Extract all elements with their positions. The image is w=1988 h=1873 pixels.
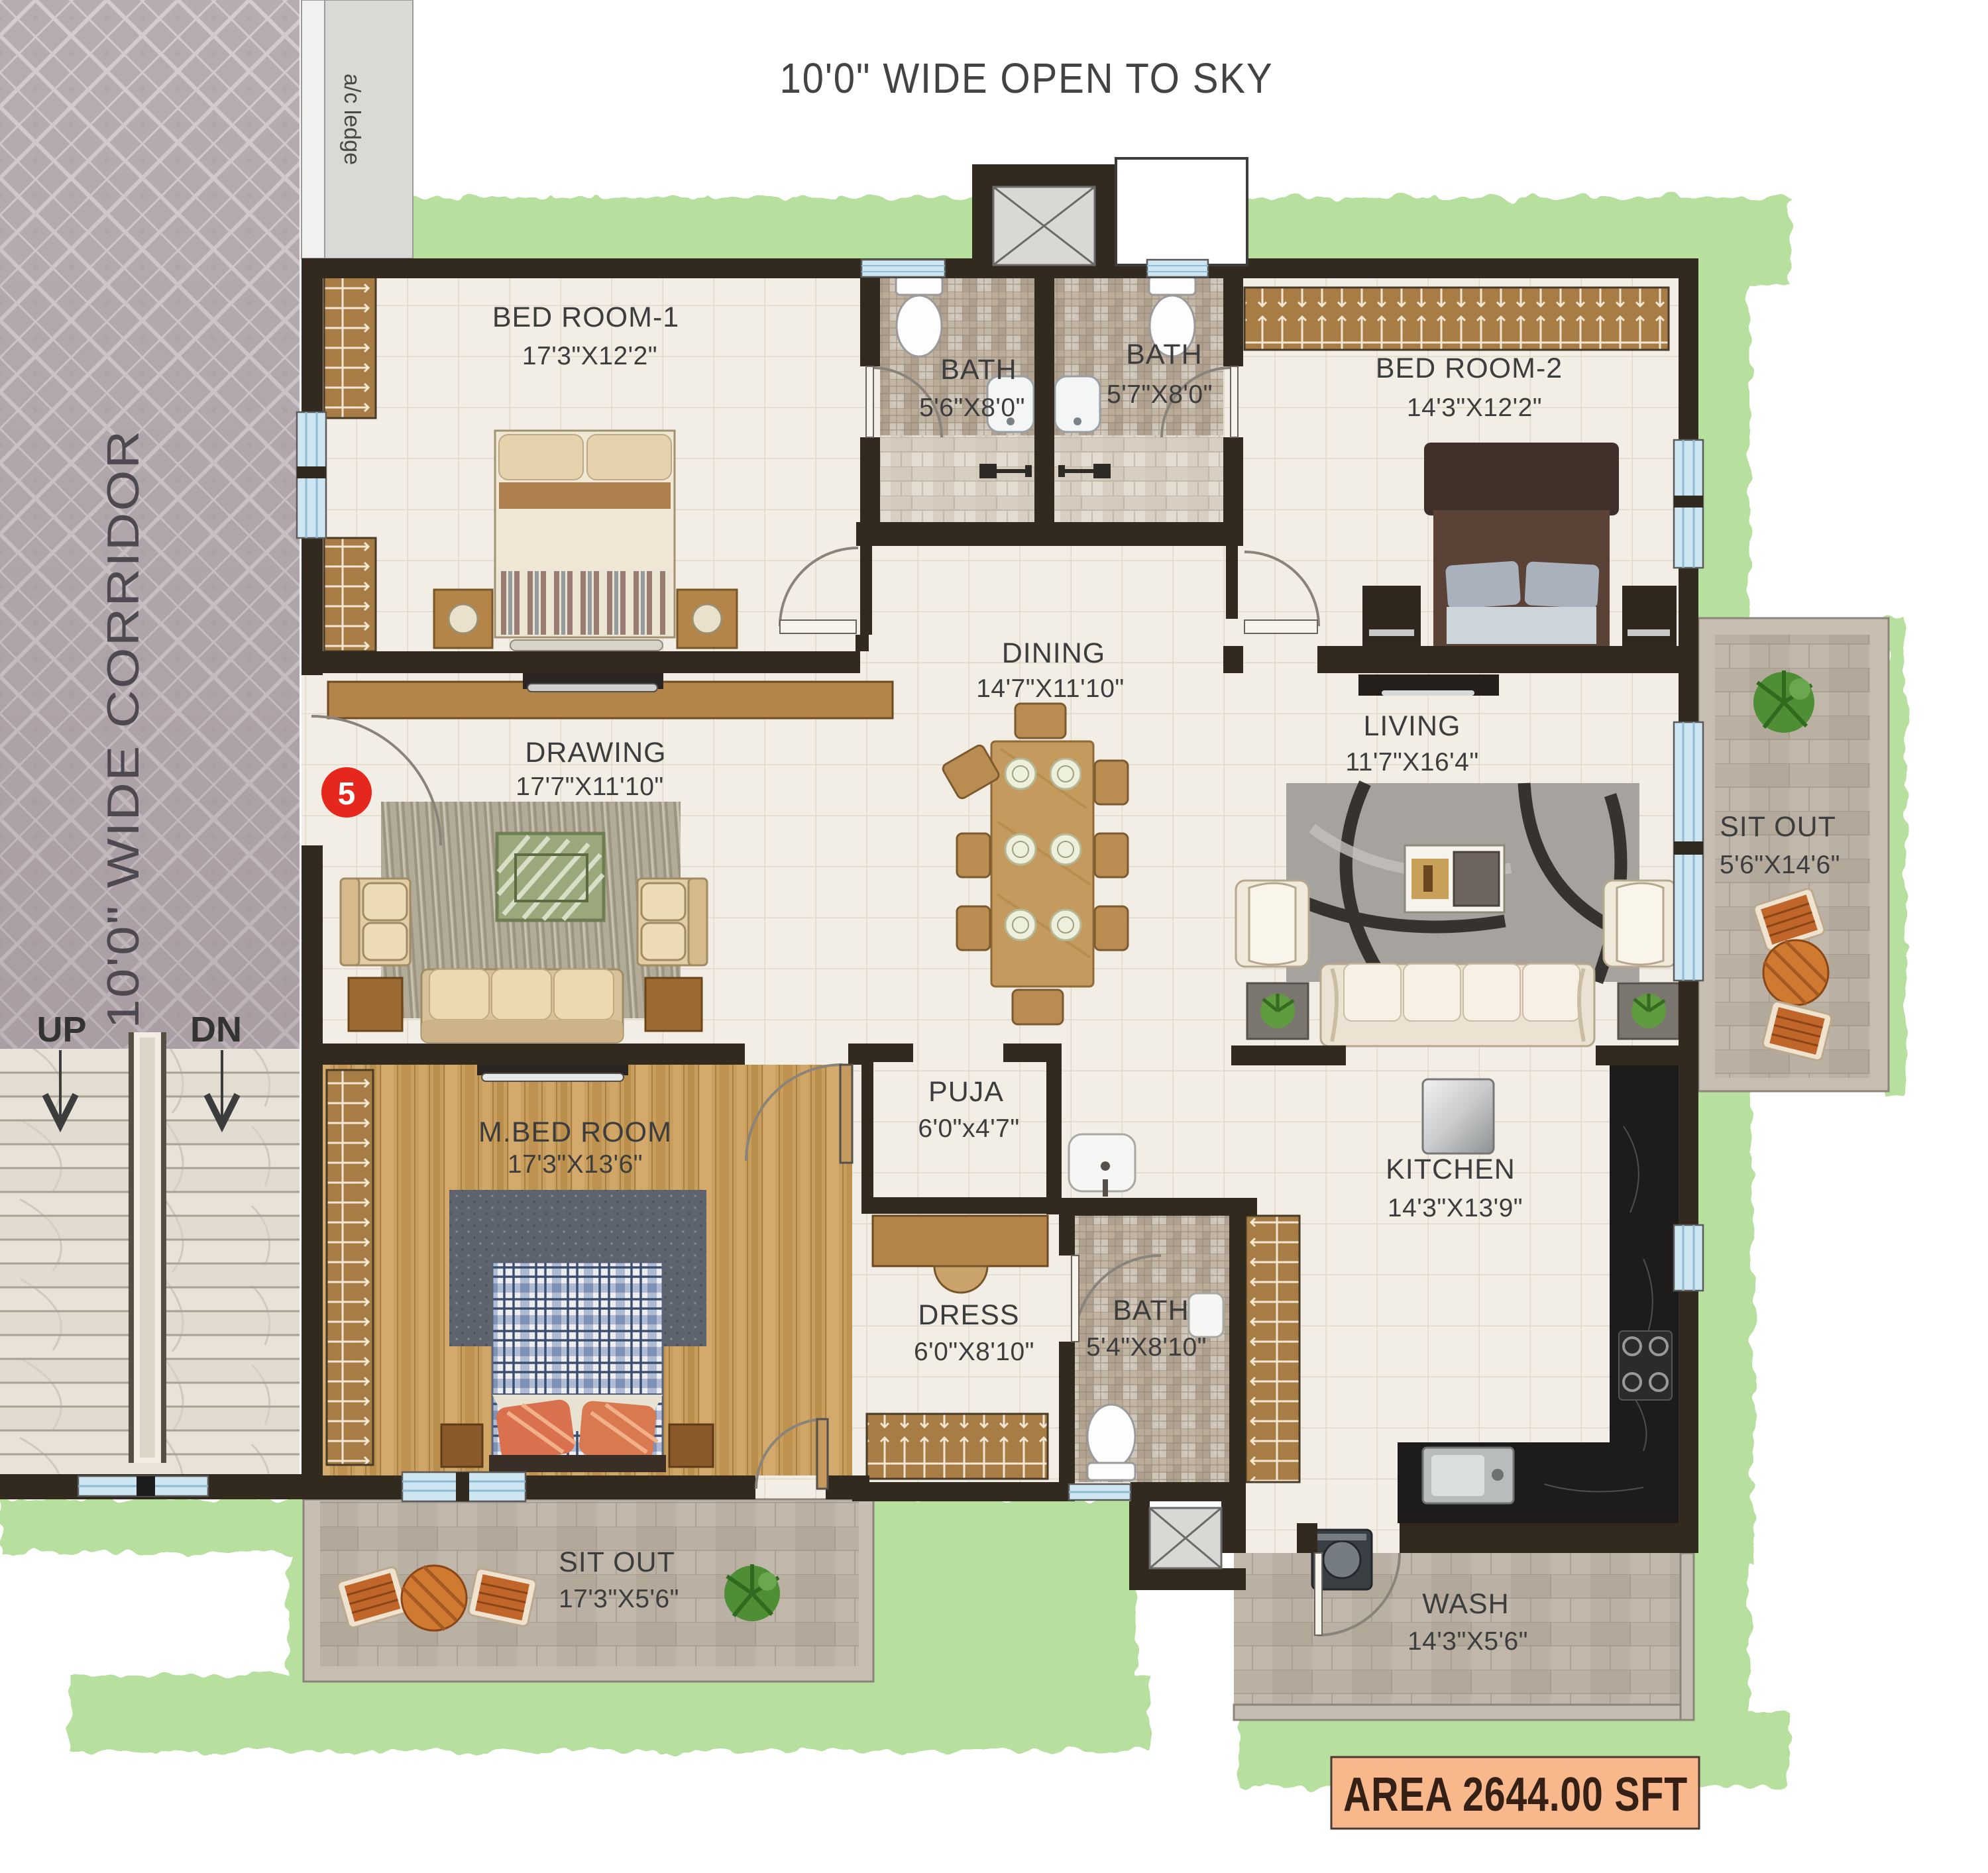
svg-text:5'4"X8'10": 5'4"X8'10" [1086, 1333, 1207, 1362]
svg-text:PUJA: PUJA [928, 1076, 1004, 1108]
svg-text:WASH: WASH [1422, 1588, 1509, 1620]
svg-text:UP: UP [36, 1010, 86, 1049]
svg-text:a/c ledge: a/c ledge [339, 74, 364, 165]
svg-text:6'0"x4'7": 6'0"x4'7" [918, 1114, 1019, 1143]
svg-text:11'7"X16'4": 11'7"X16'4" [1345, 748, 1478, 776]
svg-text:14'3"X5'6": 14'3"X5'6" [1408, 1627, 1528, 1656]
svg-text:17'3"X12'2": 17'3"X12'2" [522, 342, 657, 370]
svg-text:14'7"X11'10": 14'7"X11'10" [976, 674, 1125, 703]
svg-text:5'6"X14'6": 5'6"X14'6" [1720, 851, 1840, 879]
svg-text:5: 5 [338, 776, 356, 812]
svg-text:SIT OUT: SIT OUT [559, 1546, 675, 1578]
svg-text:10'0" WIDE OPEN TO SKY: 10'0" WIDE OPEN TO SKY [780, 54, 1274, 102]
svg-text:14'3"X12'2": 14'3"X12'2" [1407, 394, 1542, 422]
svg-text:14'3"X13'9": 14'3"X13'9" [1388, 1194, 1523, 1222]
svg-text:5'6"X8'0": 5'6"X8'0" [919, 394, 1025, 422]
svg-text:BATH: BATH [1113, 1295, 1189, 1326]
svg-text:BED ROOM-2: BED ROOM-2 [1376, 352, 1563, 384]
svg-text:BATH: BATH [940, 354, 1017, 386]
svg-text:BED ROOM-1: BED ROOM-1 [492, 301, 679, 333]
svg-text:M.BED ROOM: M.BED ROOM [478, 1116, 672, 1148]
svg-text:DRESS: DRESS [918, 1299, 1019, 1331]
svg-text:BATH: BATH [1126, 339, 1203, 370]
svg-text:6'0"X8'10": 6'0"X8'10" [914, 1338, 1034, 1366]
svg-text:10'0" WIDE CORRIDOR: 10'0" WIDE CORRIDOR [98, 429, 148, 1028]
svg-text:SIT OUT: SIT OUT [1720, 811, 1836, 843]
svg-text:17'7"X11'10": 17'7"X11'10" [516, 773, 664, 801]
svg-text:DN: DN [190, 1010, 242, 1049]
svg-text:KITCHEN: KITCHEN [1386, 1153, 1516, 1185]
svg-text:DRAWING: DRAWING [525, 737, 666, 769]
svg-text:17'3"X5'6": 17'3"X5'6" [559, 1585, 679, 1613]
svg-text:LIVING: LIVING [1364, 710, 1461, 742]
svg-text:DINING: DINING [1002, 637, 1106, 669]
svg-text:5'7"X8'0": 5'7"X8'0" [1107, 380, 1213, 409]
svg-text:AREA 2644.00 SFT: AREA 2644.00 SFT [1343, 1768, 1688, 1821]
svg-text:17'3"X13'6": 17'3"X13'6" [508, 1150, 643, 1179]
